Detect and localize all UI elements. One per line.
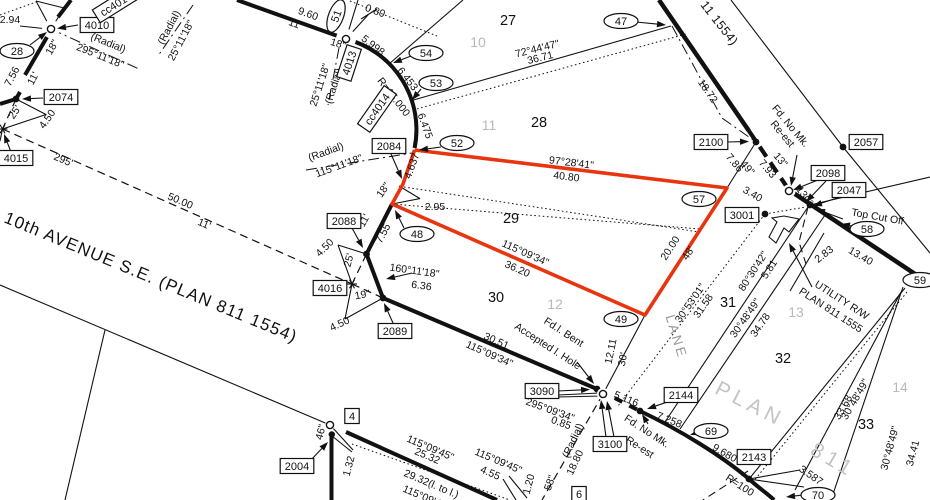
svg-text:31: 31 [720, 295, 736, 311]
svg-text:27: 27 [500, 13, 516, 29]
svg-text:28: 28 [11, 46, 23, 58]
svg-text:2100: 2100 [699, 137, 723, 149]
svg-text:58: 58 [861, 224, 873, 236]
svg-text:4015: 4015 [4, 153, 28, 165]
svg-text:2143: 2143 [742, 452, 766, 464]
svg-text:53: 53 [430, 78, 442, 90]
svg-text:2084: 2084 [377, 141, 401, 153]
svg-text:2047: 2047 [837, 185, 861, 197]
svg-text:59: 59 [914, 275, 926, 287]
svg-text:2.95: 2.95 [425, 201, 446, 213]
svg-text:6: 6 [576, 489, 582, 500]
svg-text:70: 70 [812, 490, 824, 500]
svg-text:69: 69 [705, 426, 717, 438]
svg-text:33: 33 [858, 417, 874, 433]
svg-text:3090: 3090 [530, 386, 554, 398]
svg-text:2.94: 2.94 [0, 14, 20, 26]
svg-text:30: 30 [488, 290, 504, 306]
svg-text:3100: 3100 [598, 439, 622, 451]
svg-text:29: 29 [503, 211, 519, 227]
svg-text:48: 48 [411, 229, 423, 241]
svg-text:2074: 2074 [49, 92, 73, 104]
svg-text:2089: 2089 [383, 326, 407, 338]
svg-text:12: 12 [547, 296, 563, 312]
svg-text:14: 14 [892, 379, 908, 395]
svg-text:11: 11 [482, 117, 497, 133]
svg-text:49: 49 [615, 314, 627, 326]
svg-text:2098: 2098 [816, 168, 840, 180]
svg-text:47: 47 [615, 16, 627, 28]
svg-text:32: 32 [775, 351, 791, 367]
svg-text:57: 57 [693, 194, 705, 206]
svg-text:2088: 2088 [332, 216, 356, 228]
svg-text:54: 54 [420, 48, 432, 60]
svg-text:4: 4 [349, 411, 355, 423]
svg-text:2004: 2004 [285, 461, 309, 473]
svg-text:4016: 4016 [318, 283, 342, 295]
svg-text:3001: 3001 [730, 210, 754, 222]
svg-text:2057: 2057 [854, 137, 878, 149]
svg-text:10: 10 [470, 34, 486, 50]
svg-text:13: 13 [788, 304, 804, 320]
svg-text:28: 28 [531, 115, 547, 131]
svg-text:52: 52 [451, 138, 463, 150]
svg-text:2144: 2144 [669, 390, 693, 402]
svg-text:4010: 4010 [85, 20, 109, 32]
